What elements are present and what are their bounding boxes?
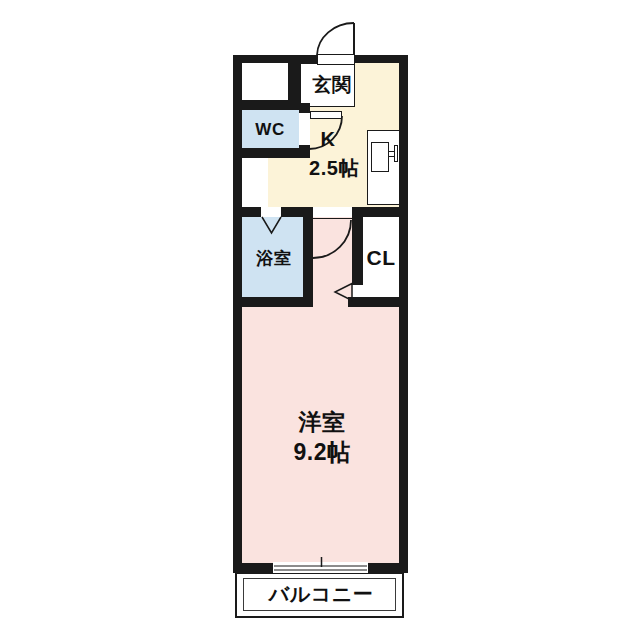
wall-left	[233, 55, 242, 573]
laundry-area	[242, 158, 268, 207]
wc-door-opening	[299, 113, 310, 145]
entrance-door-opening	[317, 54, 355, 65]
wall-right	[399, 55, 408, 573]
floor-plan: 玄関 WC K 2.5帖 浴室 CL 洋室 9.2帖 バルコニー	[0, 0, 640, 640]
closet-label: CL	[367, 247, 396, 268]
room-name-label: 洋室	[299, 411, 346, 434]
kitchen-size-label: 2.5帖	[309, 158, 359, 178]
balcony-label: バルコニー	[269, 584, 373, 604]
kitchen-sink-icon	[371, 142, 389, 172]
faucet-stem-icon	[394, 145, 398, 162]
hall-area	[313, 217, 352, 307]
entrance-door-arc-icon	[317, 23, 354, 55]
wall-bathroom-right	[303, 217, 313, 307]
wall-service-bottom	[233, 100, 300, 110]
main-room	[242, 307, 399, 564]
balcony-window-opening	[273, 562, 368, 573]
entrance-label: 玄関	[313, 75, 352, 94]
wc-door-leaf	[310, 111, 342, 119]
wall-closet-left	[352, 217, 363, 285]
wall-closet-bottom	[348, 297, 408, 307]
service-room	[242, 63, 288, 100]
kitchen-name-label: K	[321, 129, 336, 149]
room-size-label: 9.2帖	[294, 441, 351, 464]
wall-bathroom-bottom	[233, 297, 313, 307]
wall-wc-bottom	[233, 148, 310, 158]
bathroom-door-opening	[261, 207, 281, 217]
hall-door-opening	[313, 207, 352, 217]
wc-label: WC	[255, 121, 284, 138]
bathroom-label: 浴室	[257, 250, 292, 267]
